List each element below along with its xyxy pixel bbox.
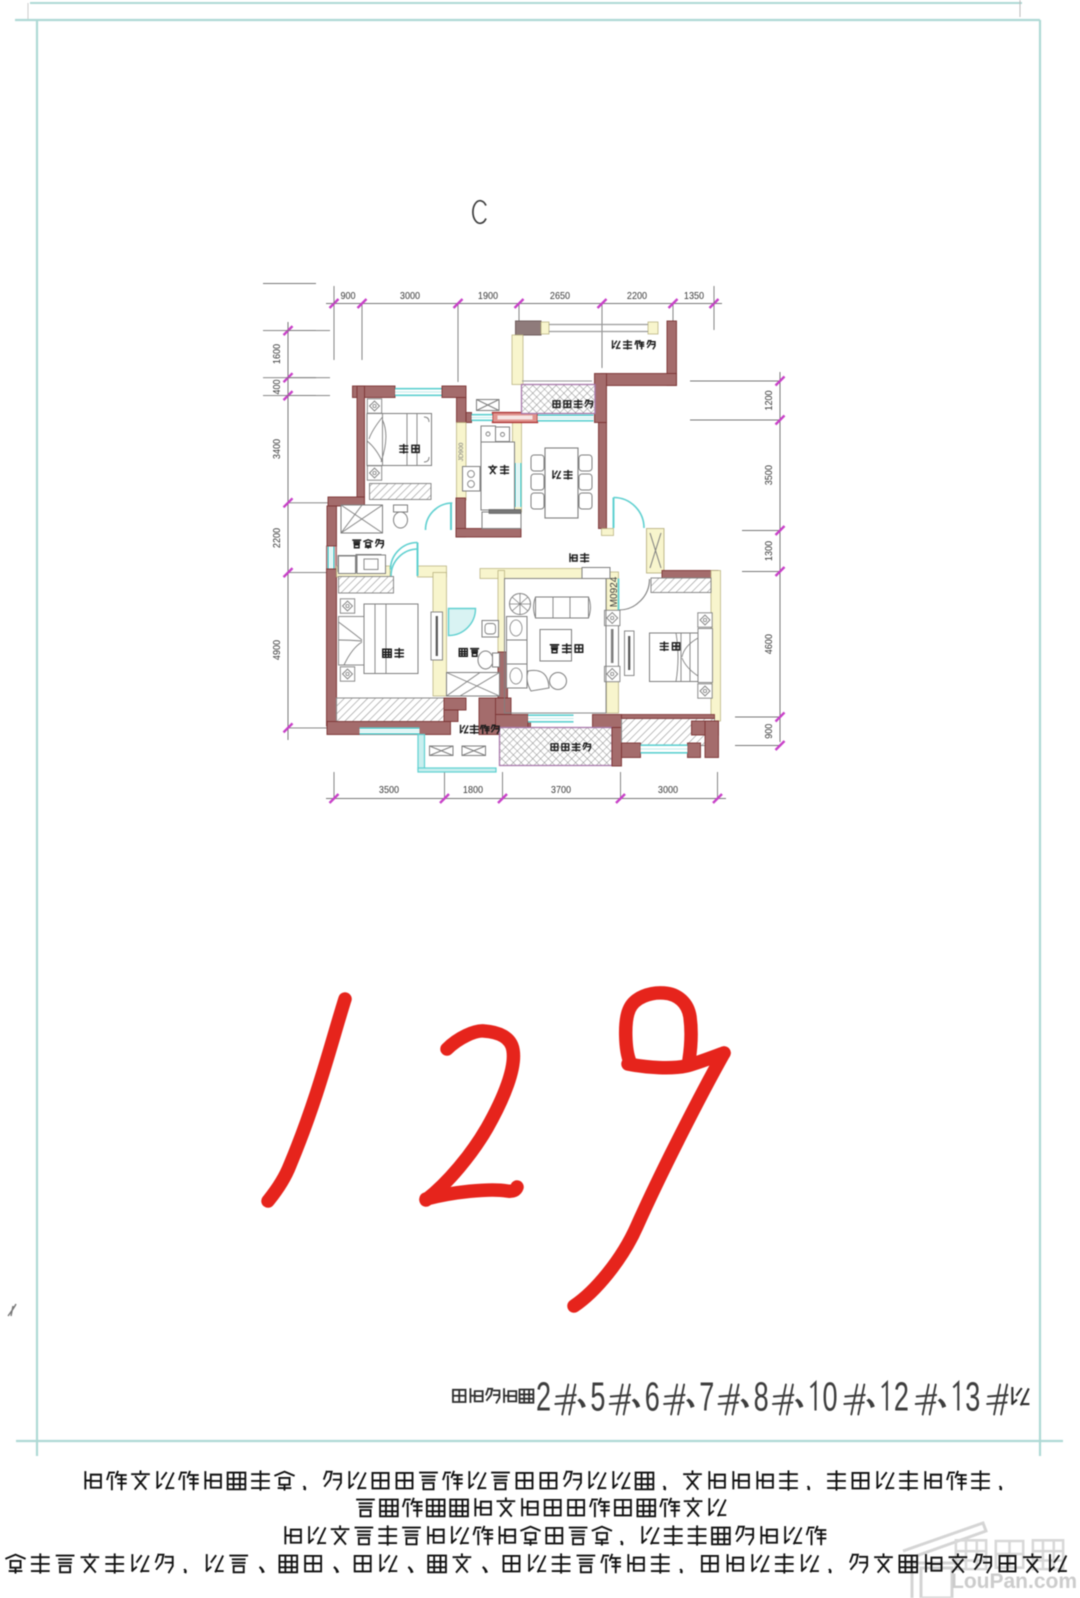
svg-text:0: 0	[823, 1375, 838, 1420]
svg-text:8: 8	[754, 1375, 769, 1420]
svg-text:1600: 1600	[271, 344, 283, 364]
svg-text:1800: 1800	[463, 784, 483, 796]
svg-text:900: 900	[340, 290, 355, 302]
svg-text:JD900: JD900	[458, 442, 465, 461]
svg-text:3700: 3700	[551, 784, 571, 796]
svg-text:2: 2	[894, 1375, 909, 1420]
svg-text:LouPan.com: LouPan.com	[951, 1570, 1077, 1593]
svg-text:900: 900	[763, 724, 775, 739]
svg-text:2200: 2200	[627, 290, 647, 302]
svg-text:3000: 3000	[658, 784, 678, 796]
svg-text:3: 3	[965, 1375, 980, 1420]
svg-text:M0924: M0924	[609, 576, 620, 607]
svg-text:6: 6	[645, 1375, 660, 1420]
svg-text:7: 7	[699, 1375, 714, 1420]
svg-text:1900: 1900	[478, 290, 498, 302]
svg-text:2: 2	[536, 1375, 551, 1420]
svg-text:1350: 1350	[684, 290, 704, 302]
svg-text:3500: 3500	[379, 784, 399, 796]
svg-text:5: 5	[590, 1375, 605, 1420]
svg-text:2650: 2650	[550, 290, 570, 302]
svg-text:1200: 1200	[763, 390, 775, 410]
svg-text:400: 400	[271, 379, 283, 394]
svg-text:4600: 4600	[763, 634, 775, 654]
svg-text:3500: 3500	[763, 465, 775, 485]
svg-text:3400: 3400	[271, 439, 283, 459]
svg-text:4900: 4900	[271, 640, 283, 660]
svg-text:2200: 2200	[271, 528, 283, 548]
svg-text:3000: 3000	[400, 290, 420, 302]
svg-text:1300: 1300	[763, 541, 775, 561]
